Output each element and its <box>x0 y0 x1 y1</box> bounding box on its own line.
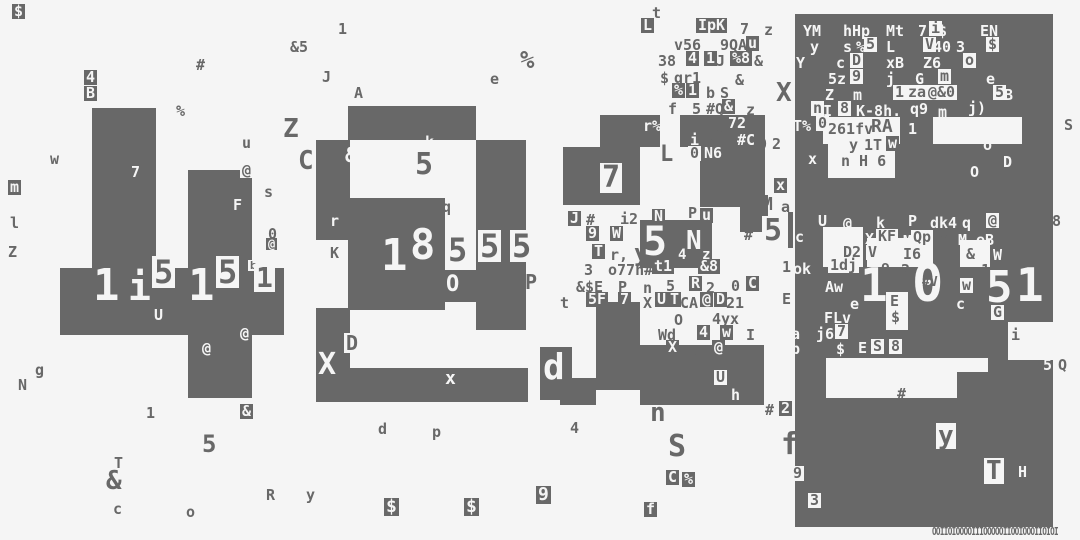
glyph: $ <box>986 37 999 52</box>
glyph: b <box>706 86 715 101</box>
glyph: C <box>298 148 314 174</box>
glyph: r% <box>643 119 661 134</box>
glyph: 5 <box>413 150 435 180</box>
glyph: x <box>774 178 787 193</box>
glyph: y <box>849 138 858 153</box>
glyph: T% <box>793 119 811 134</box>
glyph: j6 <box>816 327 834 342</box>
glyph: m <box>853 88 862 103</box>
glyph: & <box>722 99 735 114</box>
glyph: 1 <box>93 264 120 308</box>
glyph: 5 <box>202 432 216 456</box>
glyph: Y <box>796 56 805 71</box>
glyph: S <box>1064 118 1073 133</box>
digit1-lower-stem <box>188 335 252 398</box>
glyph: L <box>660 144 673 166</box>
glyph: f <box>781 430 799 460</box>
glyph: o <box>963 53 976 68</box>
glyph: 40 <box>933 40 951 55</box>
glyph: 1 <box>780 260 793 275</box>
glyph: N <box>18 378 27 393</box>
glyph: 4 <box>570 421 579 436</box>
glyph: p <box>432 425 441 440</box>
glyph: 1 <box>860 262 888 308</box>
glyph: w <box>886 136 899 151</box>
glyph: @ <box>202 341 211 356</box>
glyph: B <box>84 86 97 101</box>
glyph: N6 <box>702 146 724 161</box>
glyph: &5 <box>290 40 308 55</box>
glyph: IpK <box>696 18 727 33</box>
glyph: 8 <box>1052 214 1061 229</box>
glyph: i <box>1011 328 1020 343</box>
glyph: b <box>791 342 800 357</box>
glyph: 9 <box>791 466 804 481</box>
glyph: f <box>644 502 657 517</box>
glyph: O <box>970 165 979 180</box>
glyph: 8 <box>838 101 851 116</box>
digit1-left-bar <box>92 108 156 270</box>
glyph: I <box>746 328 755 343</box>
glyph: T <box>592 244 605 259</box>
glyph: 5 <box>986 266 1013 310</box>
glyph: n H 6 6 <box>841 154 904 169</box>
glyph: s <box>264 185 273 200</box>
glyph: 9 <box>586 226 599 241</box>
glyph: 7 <box>600 163 622 193</box>
glyph: R <box>266 488 275 503</box>
glyph: #C <box>735 133 757 148</box>
glyph: J <box>322 70 331 85</box>
glyph: 21 <box>726 296 744 311</box>
glyph: U <box>655 292 668 307</box>
digit3-left-bottom <box>596 302 640 390</box>
digit2-bottom-bar <box>316 368 528 402</box>
glyph: z <box>764 23 773 38</box>
glyph: c <box>836 56 845 71</box>
glyph: 2 <box>779 401 792 416</box>
glyph: Z <box>283 116 299 142</box>
glyph: J <box>568 211 581 226</box>
captcha-canvas: $4B#&51JAe%%ZuwC7@sF0bmlZrK&k5qU@@@gN1&5… <box>0 0 1080 540</box>
glyph: 5 <box>446 234 469 266</box>
glyph: L <box>641 18 654 33</box>
glyph: M <box>762 196 773 214</box>
glyph: g <box>35 363 44 378</box>
glyph: & <box>240 404 253 419</box>
glyph: @ <box>240 163 253 178</box>
glyph: & <box>966 247 975 262</box>
glyph: 1 <box>146 406 155 421</box>
glyph: R <box>689 276 702 291</box>
glyph: h <box>731 388 740 403</box>
glyph: E <box>858 341 867 356</box>
glyph: X <box>318 350 336 380</box>
glyph: 8 <box>889 339 902 354</box>
glyph: 3 <box>584 263 593 278</box>
glyph: E <box>780 292 793 307</box>
glyph: P <box>688 206 697 221</box>
glyph: 38 <box>658 54 676 69</box>
glyph: y <box>810 40 819 55</box>
glyph: 5 <box>762 216 784 246</box>
glyph: 4 <box>678 248 686 262</box>
glyph: y <box>306 488 315 503</box>
glyph: d <box>378 422 387 437</box>
glyph: D <box>850 53 863 68</box>
glyph: @ <box>712 340 725 355</box>
glyph: $ <box>836 342 845 357</box>
glyph: Mt <box>886 24 904 39</box>
glyph: 1 <box>893 85 906 100</box>
glyph: YM <box>803 24 821 39</box>
glyph: $ <box>12 4 25 19</box>
glyph: j) <box>968 101 986 116</box>
glyph: X <box>643 296 652 311</box>
glyph: f <box>668 102 677 117</box>
glyph: Qp <box>911 230 933 245</box>
glyph: xB <box>886 56 904 71</box>
glyph: E <box>890 294 899 309</box>
glyph: 1 <box>381 234 408 278</box>
glyph: dk4 <box>930 216 957 231</box>
glyph: 1 <box>1016 262 1044 308</box>
glyph: 72 <box>726 116 748 131</box>
glyph: # <box>897 387 906 402</box>
glyph: KF <box>876 229 898 244</box>
glyph: t <box>560 296 569 311</box>
glyph: % <box>672 83 685 98</box>
glyph: @&0 <box>926 85 957 100</box>
glyph: & <box>106 468 122 494</box>
glyph: D <box>344 333 360 353</box>
glyph: Z <box>825 88 834 103</box>
glyph: O <box>446 274 459 296</box>
glyph: m <box>8 180 21 195</box>
glyph: 1 <box>908 122 917 137</box>
glyph: 2 <box>901 263 910 278</box>
glyph: 1 <box>188 264 215 308</box>
glyph: J <box>716 54 725 69</box>
glyph: @ <box>700 292 713 307</box>
glyph: K <box>330 246 339 261</box>
glyph: za <box>906 85 928 100</box>
digit3-bottom-mass <box>640 345 764 405</box>
glyph: %8 <box>730 51 752 66</box>
glyph: c <box>795 230 804 245</box>
glyph: 5z <box>828 72 846 87</box>
glyph: $ <box>384 498 399 516</box>
glyph: 5 <box>478 230 501 262</box>
glyph: 5 <box>216 256 239 288</box>
glyph: % <box>682 472 695 487</box>
glyph: & <box>735 73 744 88</box>
glyph: l <box>10 216 19 231</box>
glyph: # <box>196 58 205 73</box>
glyph: W <box>610 226 623 241</box>
glyph: $ <box>660 71 669 86</box>
glyph: i <box>128 268 151 306</box>
glyph: Q <box>1058 358 1067 373</box>
glyph: a <box>781 200 790 215</box>
glyph: & <box>345 145 357 165</box>
glyph: 9 <box>536 486 551 504</box>
glyph: P <box>908 214 917 229</box>
glyph: 0 <box>731 279 740 294</box>
glyph: 0 <box>688 146 701 161</box>
glyph: r <box>330 214 339 229</box>
glyph: # <box>765 403 774 418</box>
glyph: i2 <box>620 212 638 227</box>
glyph: 8 <box>410 224 435 266</box>
glyph: 4 <box>697 325 710 340</box>
glyph: P <box>525 272 537 292</box>
glyph: U <box>154 308 163 323</box>
glyph: 261fv <box>828 122 873 137</box>
glyph: x <box>808 152 817 167</box>
glyph: 5 <box>152 256 175 288</box>
glyph: @ <box>986 213 999 228</box>
glyph: Z <box>8 245 17 260</box>
glyph: B <box>1004 88 1013 103</box>
panel-light-patch <box>955 358 988 372</box>
glyph: c <box>113 502 122 517</box>
glyph: 5 <box>510 230 533 262</box>
glyph: $ <box>464 498 479 516</box>
glyph: 7 <box>835 324 848 339</box>
glyph: m <box>938 69 951 84</box>
glyph: @ <box>266 238 277 250</box>
glyph: S <box>668 432 686 462</box>
glyph: % <box>176 104 185 119</box>
glyph: @ <box>843 216 852 231</box>
glyph: u <box>700 208 713 223</box>
glyph: CA <box>680 296 698 311</box>
glyph: X <box>666 340 679 355</box>
glyph: 5 <box>1043 358 1052 373</box>
glyph: H <box>1018 465 1027 480</box>
digit2-top-bar <box>348 106 476 140</box>
glyph: 1dj <box>828 258 859 273</box>
glyph: d <box>543 350 565 386</box>
glyph: 7 <box>131 165 140 180</box>
panel-light-band-bottom <box>826 358 957 398</box>
glyph: ok <box>793 262 811 277</box>
glyph: @ <box>240 326 249 341</box>
glyph: W <box>993 248 1002 263</box>
glyph: e <box>850 297 859 312</box>
glyph: q9 <box>910 102 928 117</box>
glyph: 1 <box>254 264 275 292</box>
glyph: 1 <box>338 22 347 37</box>
glyph: U <box>818 214 827 229</box>
glyph: x <box>445 370 456 388</box>
glyph: Aw <box>825 280 843 295</box>
glyph: q <box>962 216 971 231</box>
glyph: m <box>938 105 947 120</box>
glyph: & <box>754 54 763 69</box>
glyph: 0 <box>758 137 767 152</box>
glyph: 3 <box>808 493 821 508</box>
glyph: e <box>490 72 499 87</box>
glyph: % <box>520 48 534 72</box>
glyph: w <box>50 152 59 167</box>
glyph: 9 <box>940 234 949 249</box>
glyph: o <box>983 138 992 153</box>
glyph: #V <box>922 276 938 289</box>
glyph: T <box>984 458 1004 484</box>
glyph: s <box>724 137 733 152</box>
digit2-right-col-upper <box>476 140 526 222</box>
glyph: $ <box>938 24 947 39</box>
glyph: 4 <box>84 70 97 85</box>
edge-bar <box>788 212 793 248</box>
glyph: o77h# <box>608 263 653 278</box>
glyph: L <box>886 40 895 55</box>
glyph: 9 <box>850 69 863 84</box>
glyph: q <box>716 120 725 135</box>
glyph: 4 <box>686 51 699 66</box>
glyph: F <box>233 198 242 213</box>
glyph: 1 <box>686 83 699 98</box>
glyph: U <box>714 370 727 385</box>
glyph: 5 <box>864 37 877 52</box>
glyph: eB <box>976 233 994 248</box>
glyph: A <box>354 86 363 101</box>
glyph: u <box>690 345 699 360</box>
glyph: 2 <box>772 137 781 152</box>
glyph: w <box>960 278 973 293</box>
glyph: X <box>776 80 792 106</box>
glyph: # <box>744 228 753 243</box>
glyph: $ <box>891 310 900 325</box>
glyph: C <box>666 470 679 485</box>
binary-strip: OOIIOIOOOOIIIOOOOOIIOOIOOOIIOIOI <box>932 526 1058 537</box>
glyph: y <box>936 423 956 449</box>
glyph: z <box>702 248 710 262</box>
glyph: 5 <box>643 222 667 262</box>
glyph: C <box>746 276 759 291</box>
glyph: c <box>956 297 965 312</box>
glyph: D <box>1003 155 1012 170</box>
glyph: 7 <box>618 292 631 307</box>
glyph: 5 <box>692 102 701 117</box>
glyph: o <box>186 505 195 520</box>
glyph: S <box>871 339 884 354</box>
glyph: q <box>442 200 451 215</box>
glyph: u <box>242 136 251 151</box>
glyph: 5F <box>586 292 608 307</box>
glyph: N <box>686 228 702 254</box>
glyph: 1T <box>864 138 882 153</box>
glyph: n <box>650 400 666 426</box>
